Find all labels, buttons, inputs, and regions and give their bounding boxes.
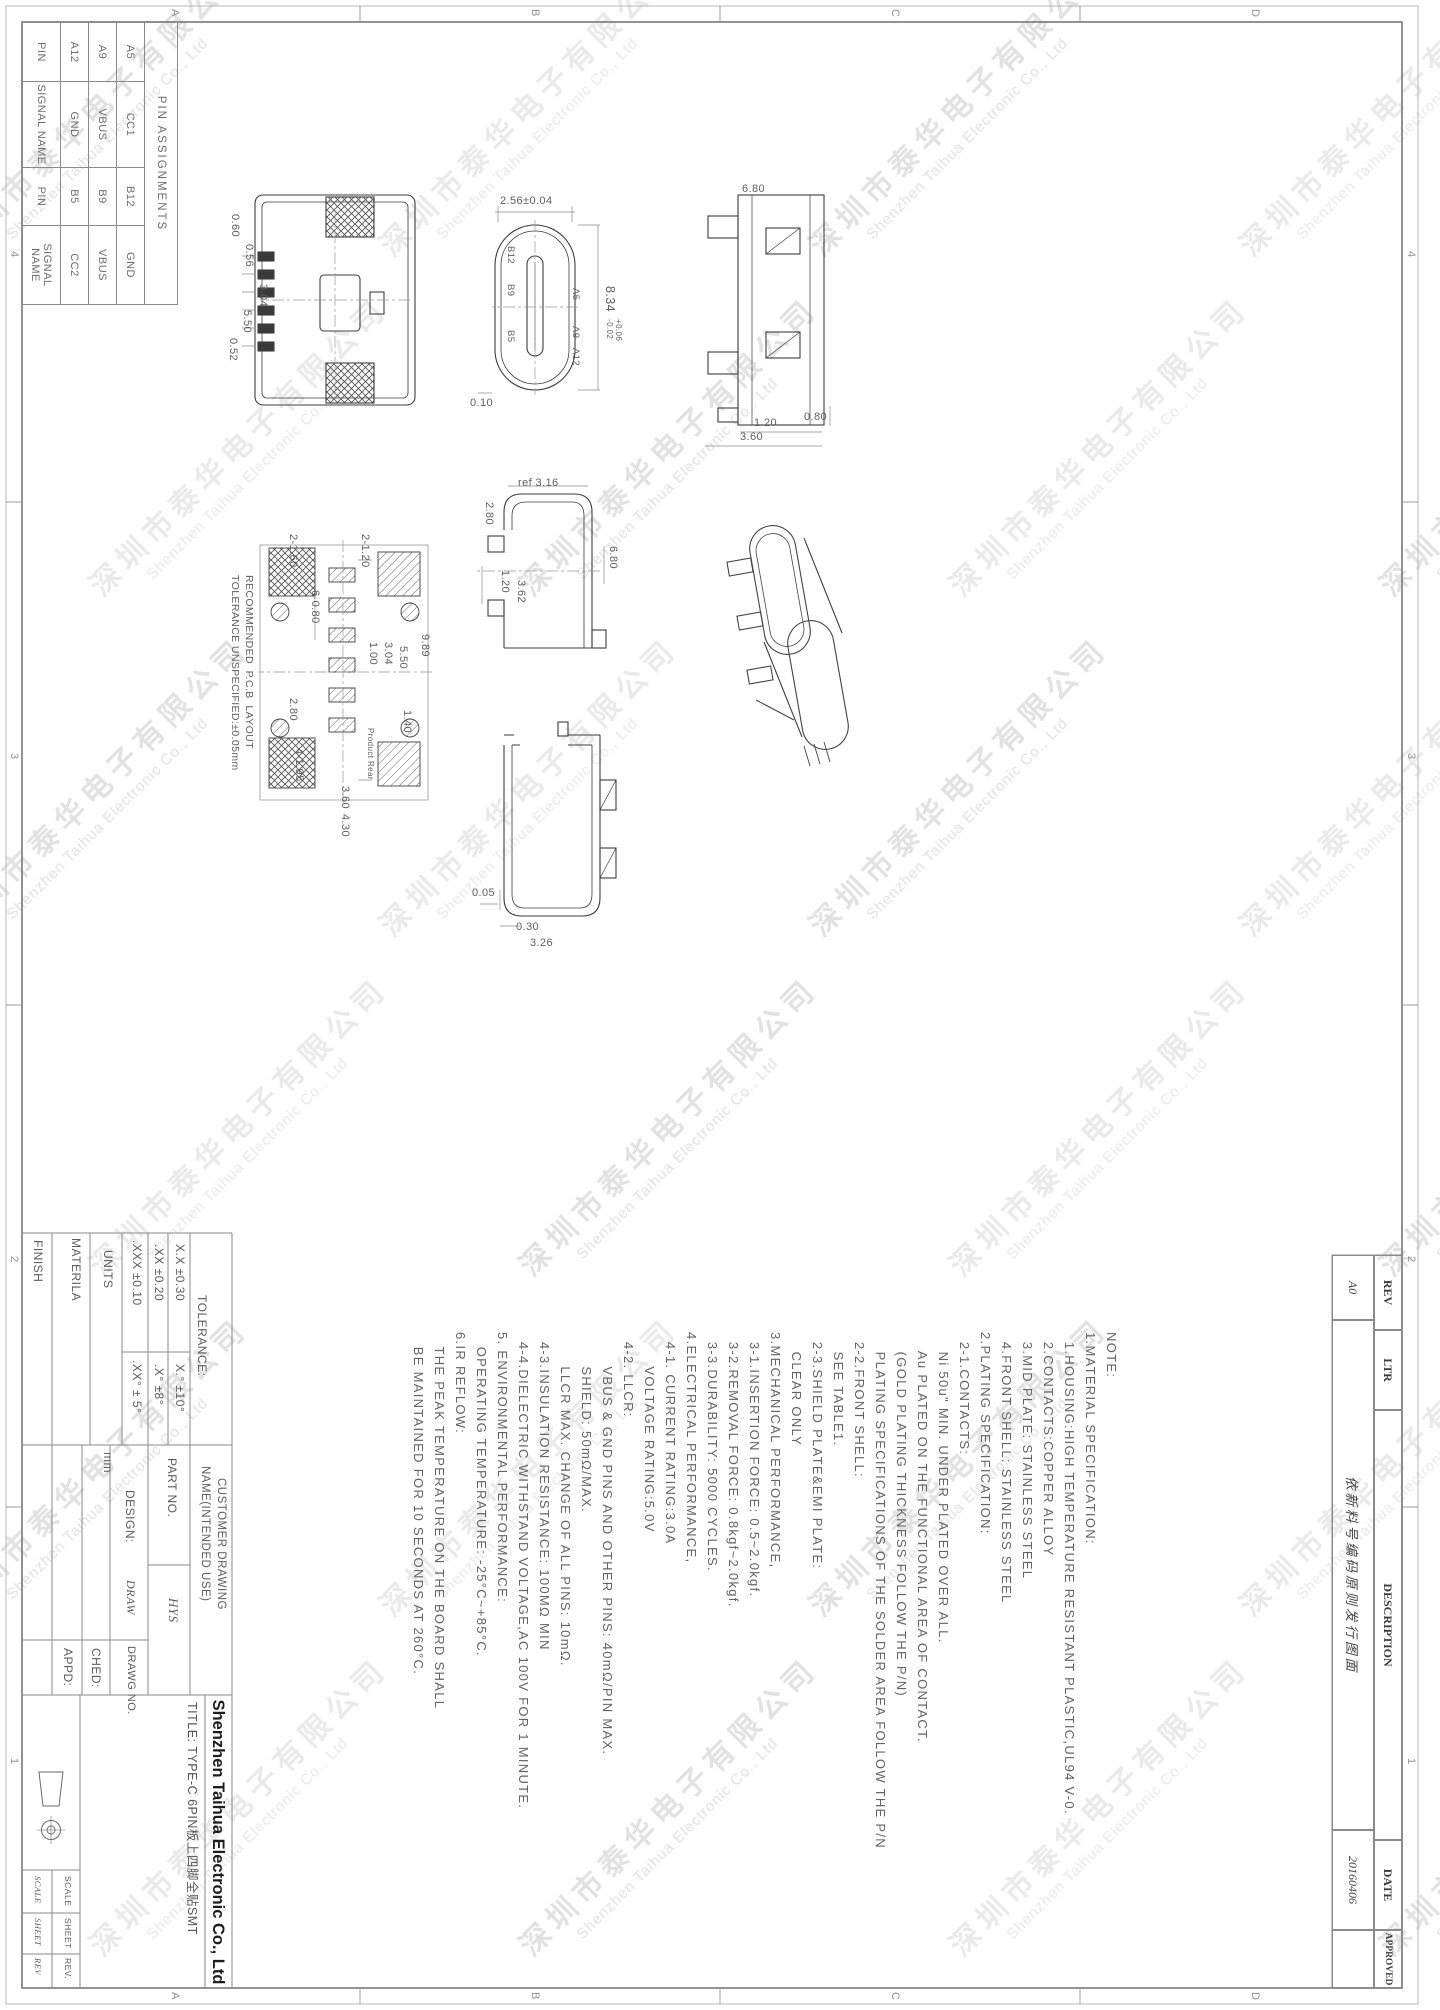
approved-header: APPROVED [1374,1930,1402,1988]
name-intended-use-label: NAME(INTENDED USE) [199,1466,211,1602]
note-line: SEE TABLE1. [828,1332,849,1849]
note-line: VOLTAGE RATING:5.0V [639,1332,660,1849]
approved-value [1332,1930,1374,1988]
ltr-header: LTR [1374,1330,1402,1410]
design-label: DESIGN: [124,1490,136,1543]
part-no-label: PART NO. [166,1458,178,1517]
pin-table-cell: B12 [117,168,145,226]
dimension-label: Product Rear [366,728,374,780]
tolerance-row-linear: X.X ±0.30 [174,1244,186,1301]
dimension-label: 3.26 [530,938,553,949]
dimension-label: 2.80 [483,502,494,525]
ched-label: CHED: [90,1648,102,1688]
dimension-label: A5 [571,288,581,300]
tolerance-row-linear: .XXX ±0.10 [131,1240,143,1306]
date-header: DATE [1374,1840,1402,1930]
dimension-label: 2.56±0.04 [500,196,552,207]
dimension-label: 0.10 [470,398,493,409]
note-line: THE PEAK TEMPERATURE ON THE BOARD SHALL [429,1332,450,1849]
zone-marker: 3 [8,753,19,759]
pin-table-cell: A12 [61,23,89,82]
appd-label: APPD: [62,1648,74,1687]
dimension-label: 0.52 [227,338,238,361]
note-line: 4-1. CURRENT RATING:3.0A [660,1332,681,1849]
dimension-label: 1.40 [401,710,412,733]
engineering-drawing-page: { "watermark": {"cn": "深圳市泰华电子有限公司", "en… [0,0,1440,2010]
dimension-label: ref 3.16 [518,478,559,489]
pin-table-cell: A5 [117,23,145,82]
pin-table-cell: PIN [23,23,61,82]
note-line: (GOLD PLATING THICKNESS FOLLOW THE P/N) [891,1332,912,1849]
note-line: 1.HOUSING:HIGH TEMPERATURE RESISTANT PLA… [1059,1332,1080,1849]
pin-table-cell: GND [117,226,145,305]
dimension-label: TOLERANCE UNSPECIFIED:±0.05mm [230,575,241,771]
note-line: 4-3.INSULATION RESISTANCE: 100MΩ MIN [534,1332,555,1849]
dimension-label: -0.02 [605,319,613,339]
note-line: 3-3.DURABILITY: 5000 CYCLES. [702,1332,723,1849]
dimension-label: 0.60 [229,214,240,237]
dimension-label: +0.06 [614,319,622,341]
zone-marker: A [169,9,180,16]
material-label: MATERILA [70,1238,82,1301]
rev-label: REV. [64,1958,73,1979]
zone-marker: B [529,1992,540,1999]
tolerance-row-angular: X.° ±10° [174,1364,186,1412]
zone-marker: 4 [8,251,19,257]
tolerance-row-angular: .X° ±8° [153,1364,165,1405]
note-line: OPERATING TEMPERATURE: -25°C~+85°C. [471,1332,492,1849]
note-line: 3.MID PLATE: STAINLESS STEEL [1017,1332,1038,1849]
note-line: 2.CONTACTS:COPPER ALLOY [1038,1332,1059,1849]
dimension-label: 3.60 [740,432,763,443]
design-value: DRAW [125,1580,137,1615]
dimension-label: 4.30 [339,814,350,837]
zone-marker: C [889,1992,900,2000]
note-line: Au PLATED ON THE FUNCTIONAL AREA OF CONT… [912,1332,933,1849]
dimension-label: 1.20 [754,418,777,429]
date-value: 20160406 [1332,1830,1374,1930]
dimension-label: 1.00 [367,642,378,665]
note-line: 4-4.DIELECTRIC WITHSTAND VOLTAGE,AC 100V… [513,1332,534,1849]
note-line: LLCR MAX. CHANGE OF ALL PINS: 10mΩ. [555,1332,576,1849]
note-line: CLEAR ONLY [786,1332,807,1849]
note-line: 3-2.REMOVAL FORCE: 0.8kgf~2.0kgf. [723,1332,744,1849]
note-line: SHIELD: 50mΩ/MAX. [576,1332,597,1849]
sheet-label: SHEET [64,1918,73,1949]
dimension-label: 5.50 [397,646,408,669]
pin-table-cell: CC2 [61,226,89,305]
dimension-label: 3.62 [515,580,526,603]
drawing-title: TITLE: TYPE-C 6PIN板上四脚全贴SMT [186,1702,199,1935]
note-line: 5. ENVIRONMENTAL PERFORMANCE: [492,1332,513,1849]
zone-marker: C [889,9,900,17]
note-line: 6.IR REFLOW: [450,1332,471,1849]
tolerance-row-angular: .XX° ± 5° [131,1360,143,1413]
description-header: DESCRIPTION [1374,1410,1402,1840]
customer-drawing-label: CUSTOMER DRAWING [215,1478,227,1610]
zone-marker: 4 [1405,251,1416,257]
note-line: VBUS & GND PINS AND OTHER PINS: 40mΩ/PIN… [597,1332,618,1849]
dimension-label: 0.80 [804,412,827,423]
dimension-label: A9 [571,326,581,338]
note-line: 2-1.CONTACTS: [954,1332,975,1849]
pin-table-cell: PIN [23,168,61,226]
dimension-label: 9.89 [419,634,430,657]
pin-table-cell: B5 [61,168,89,226]
note-line: 3-1.INSERTION FORCE: 0.5~2.0kgf. [744,1332,765,1849]
note-line: 4.ELECTRICAL PERFORMANCE, [681,1332,702,1849]
dimension-label: RECOMMENDED P.C.B LAYOUT [244,575,255,749]
company-name: Shenzhen Taihua Electronic Co., Ltd [210,1698,227,1986]
dimension-label: B12 [506,246,516,264]
note-line: Ni 50u" MIN. UNDER PLATED OVER ALL. [933,1332,954,1849]
note-line: 2-2.FRONT SHELL: [849,1332,870,1849]
tolerance-row-linear: .XX ±0.20 [153,1244,165,1301]
drawing-sheet: NOTE:1.MATERIAL SPECIFICATION: 1.HOUSING… [0,0,1440,2010]
note-line: 4.FRONT SHELL: STAINLESS STEEL [996,1332,1017,1849]
notes-block: NOTE:1.MATERIAL SPECIFICATION: 1.HOUSING… [408,1332,1122,1849]
zone-marker: 2 [1405,1256,1416,1262]
zone-marker: 3 [1405,753,1416,759]
pin-table-cell: VBUS [89,226,117,305]
zone-marker: B [529,9,540,16]
pin-table-cell: GND [61,82,89,168]
pin-table-cell: SIGNAL NAME [23,226,61,305]
dimension-label: A12 [571,348,581,366]
dimension-label: B9 [506,284,516,296]
dimension-label: 0.30 [516,922,539,933]
dimension-label: 6-0.80 [309,590,320,624]
zone-marker: A [169,1992,180,1999]
description-value: 依新料号编码原则发行图面 [1332,1320,1374,1830]
dimension-label: 3.04 [257,284,268,307]
finish-label: FINISH [32,1240,44,1282]
note-line: 2-3.SHIELD PLATE&EMI PLATE: [807,1332,828,1849]
zone-marker: D [1249,1992,1260,2000]
zone-marker: 1 [1405,1758,1416,1764]
sheet-value: SHEET [34,1918,43,1946]
dimension-label: 1.20 [499,570,510,593]
dimension-label: 2.80 [287,698,298,721]
dimension-label: 0.05 [472,888,495,899]
dimension-label: 2-1.60 [287,534,298,568]
part-no-value: HYS [167,1598,180,1623]
pin-table-cell: B9 [89,168,117,226]
dimension-label: 4-1.95 [293,748,304,782]
rev-header: REV [1374,1255,1402,1330]
tolerance-label: TOLERANCE: [196,1295,208,1376]
pin-table-cell: SIGNAL NAME [23,82,61,168]
pin-table-cell: VBUS [89,82,117,168]
pin-assignments-table: PIN ASSIGNMENTSA5CC1B12GNDA9VBUSB9VBUSA1… [22,22,178,305]
dimension-label: 3.60 [339,786,350,809]
dimension-label: 6.80 [742,184,765,195]
note-line: BE MAINTAINED FOR 10 SECONDS AT 260°C. [408,1332,429,1849]
units-value: mm [102,1452,114,1473]
zone-marker: 2 [8,1256,19,1262]
drawg-no-label: DRAWG NO. [125,1646,136,1715]
dimension-label: 8.34 [604,286,617,312]
note-line: NOTE: [1101,1332,1122,1849]
scale-value: SCALE [34,1876,43,1904]
zone-marker: 1 [8,1758,19,1764]
note-line: 4-2. LLCR: [618,1332,639,1849]
pin-table-title: PIN ASSIGNMENTS [145,23,178,305]
note-line: 2.PLATING SPECIFICATION: [975,1332,996,1849]
rev-value: A0 [1332,1255,1374,1320]
note-line: 1.MATERIAL SPECIFICATION: [1080,1332,1101,1849]
dimension-label: 5.50 [241,310,252,333]
note-line: PLATING SPECIFICATIONS OF THE SOLDER ARE… [870,1332,891,1849]
rev-value-small: REV [34,1958,43,1975]
zone-marker: D [1249,9,1260,17]
dimension-label: 6.80 [607,546,618,569]
dimension-label: 2-1.20 [359,534,370,568]
pin-table-cell: A9 [89,23,117,82]
pin-table-cell: CC1 [117,82,145,168]
dimension-label: B5 [506,330,516,342]
units-label: UNITS [102,1250,114,1289]
dimension-label: 3.04 [382,642,393,665]
dimension-label: 0.56 [243,244,254,267]
scale-label: SCALE [64,1876,73,1906]
note-line: 3.MECHANICAL PERFORMANCE, [765,1332,786,1849]
